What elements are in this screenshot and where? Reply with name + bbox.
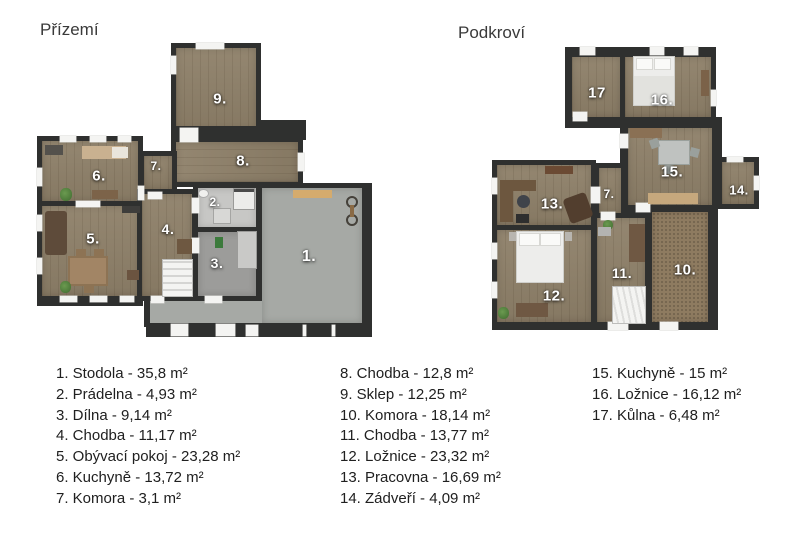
bicycle-frame: [350, 205, 354, 217]
washing-machine: [234, 189, 254, 209]
room-label: 3.: [211, 255, 224, 271]
door-opening: [601, 212, 615, 220]
wall-segment: [712, 117, 722, 162]
laptop: [516, 214, 529, 223]
plant: [60, 281, 71, 293]
window-opening: [90, 296, 107, 302]
wall-segment: [146, 323, 262, 337]
door-opening: [754, 176, 759, 190]
door-opening: [192, 238, 199, 253]
room-label: 16.: [651, 92, 673, 109]
room-label: 10.: [674, 262, 696, 279]
plant: [60, 188, 72, 201]
door-opening: [151, 296, 164, 303]
rug: [598, 227, 611, 236]
legend-item: 2. Prádelna - 4,93 m²: [56, 385, 240, 406]
nightstand: [565, 232, 572, 241]
door-opening: [246, 325, 258, 336]
legend-item: 3. Dílna - 9,14 m²: [56, 406, 240, 427]
room-label: 1.: [302, 248, 316, 266]
window-opening: [492, 282, 497, 298]
room-label: 7.: [150, 159, 161, 173]
cabinet: [127, 270, 139, 280]
bench: [701, 70, 709, 96]
pillow: [541, 234, 560, 245]
legend-item: 4. Chodba - 11,17 m²: [56, 426, 240, 447]
door-opening: [76, 201, 100, 207]
door-opening: [636, 203, 650, 212]
room-label: 8.: [236, 153, 250, 170]
window-opening: [60, 296, 77, 302]
room-label: 15.: [661, 164, 683, 181]
cushion: [112, 147, 128, 158]
wardrobe: [629, 224, 645, 262]
window-opening: [118, 136, 131, 142]
dining-table: [70, 258, 106, 284]
door-opening: [660, 322, 678, 330]
floorplan-image: Přízemí: [0, 0, 800, 534]
legend-column-1: 1. Stodola - 35,8 m² 2. Prádelna - 4,93 …: [56, 364, 240, 510]
wall-segment: [144, 297, 150, 327]
legend-column-3: 15. Kuchyně - 15 m² 16. Ložnice - 16,12 …: [592, 364, 741, 426]
window-opening: [90, 136, 106, 142]
sofa: [45, 211, 67, 255]
legend-item: 9. Sklep - 12,25 m²: [340, 385, 501, 406]
window-opening: [492, 243, 497, 259]
chair: [76, 249, 86, 257]
room-label: 4.: [162, 221, 175, 237]
kitchen-counter: [45, 145, 63, 155]
legend-item: 14. Zádveří - 4,09 m²: [340, 489, 501, 510]
room-label: 9.: [213, 91, 227, 108]
legend-column-2: 8. Chodba - 12,8 m² 9. Sklep - 12,25 m² …: [340, 364, 501, 510]
legend-item: 7. Komora - 3,1 m²: [56, 489, 240, 510]
cabinet: [177, 239, 192, 254]
legend-item: 10. Komora - 18,14 m²: [340, 406, 501, 427]
pillow: [655, 59, 670, 69]
cabinet: [630, 128, 662, 138]
door-opening: [216, 324, 235, 336]
room-label: 5.: [86, 231, 100, 248]
chair: [94, 249, 104, 257]
room-label: 7.: [603, 187, 614, 201]
door-opening: [148, 192, 162, 199]
room-label: 14.: [729, 183, 749, 198]
legend-item: 5. Obývací pokoj - 23,28 m²: [56, 447, 240, 468]
door-opening: [573, 112, 587, 121]
door-opening: [711, 90, 716, 106]
window-opening: [120, 296, 134, 302]
stairs: [163, 260, 192, 296]
office-chair: [517, 195, 530, 208]
stairs: [613, 287, 645, 323]
plan-title-attic: Podkroví: [458, 23, 525, 43]
sideboard: [92, 190, 118, 199]
door-opening: [171, 324, 188, 336]
shelf: [545, 166, 573, 174]
nightstand: [509, 232, 516, 241]
door-opening: [138, 186, 144, 200]
terrace-apron: [150, 301, 262, 323]
workbench: [238, 232, 256, 268]
legend-item: 17. Kůlna - 6,48 m²: [592, 406, 741, 427]
window-opening: [37, 258, 42, 274]
room-label: 17: [588, 85, 606, 102]
door-opening: [180, 128, 198, 142]
shelf: [293, 190, 332, 198]
legend-item: 13. Pracovna - 16,69 m²: [340, 468, 501, 489]
pillow: [520, 234, 539, 245]
table: [659, 141, 689, 164]
cabinet: [214, 209, 230, 223]
door-opening: [205, 296, 222, 303]
plan-title-ground: Přízemí: [40, 20, 99, 40]
window-opening: [650, 47, 664, 55]
window-opening: [60, 136, 76, 142]
window-opening: [171, 56, 176, 74]
door-opening: [591, 187, 600, 203]
plant: [498, 307, 509, 319]
door-opening: [332, 325, 335, 336]
window-opening: [727, 157, 743, 162]
room-label: 2.: [209, 195, 220, 209]
window-opening: [37, 168, 42, 186]
pillow: [637, 59, 652, 69]
window-opening: [580, 47, 595, 55]
window-opening: [196, 43, 224, 49]
legend-item: 6. Kuchyně - 13,72 m²: [56, 468, 240, 489]
room-label: 13.: [541, 196, 563, 213]
legend-item: 11. Chodba - 13,77 m²: [340, 426, 501, 447]
desk: [500, 180, 536, 191]
sideboard: [648, 193, 698, 204]
room-label: 11.: [612, 265, 632, 281]
window-opening: [684, 47, 698, 55]
desk: [500, 191, 513, 222]
chair: [84, 285, 94, 293]
window-opening: [37, 215, 42, 231]
door-opening: [303, 325, 306, 336]
legend-item: 8. Chodba - 12,8 m²: [340, 364, 501, 385]
room-label: 12.: [543, 288, 565, 305]
plant: [215, 237, 223, 248]
tv: [122, 206, 140, 213]
legend-item: 12. Ložnice - 23,32 m²: [340, 447, 501, 468]
dresser: [516, 303, 548, 317]
legend-item: 1. Stodola - 35,8 m²: [56, 364, 240, 385]
room-9-sklep: [171, 43, 261, 135]
door-opening: [608, 322, 628, 330]
window-opening: [492, 178, 497, 194]
room-label: 6.: [92, 168, 106, 185]
door-opening: [298, 153, 304, 171]
sink: [199, 190, 208, 197]
door-opening: [192, 198, 199, 213]
door-opening: [620, 134, 628, 148]
legend-item: 15. Kuchyně - 15 m²: [592, 364, 741, 385]
legend-item: 16. Ložnice - 16,12 m²: [592, 385, 741, 406]
